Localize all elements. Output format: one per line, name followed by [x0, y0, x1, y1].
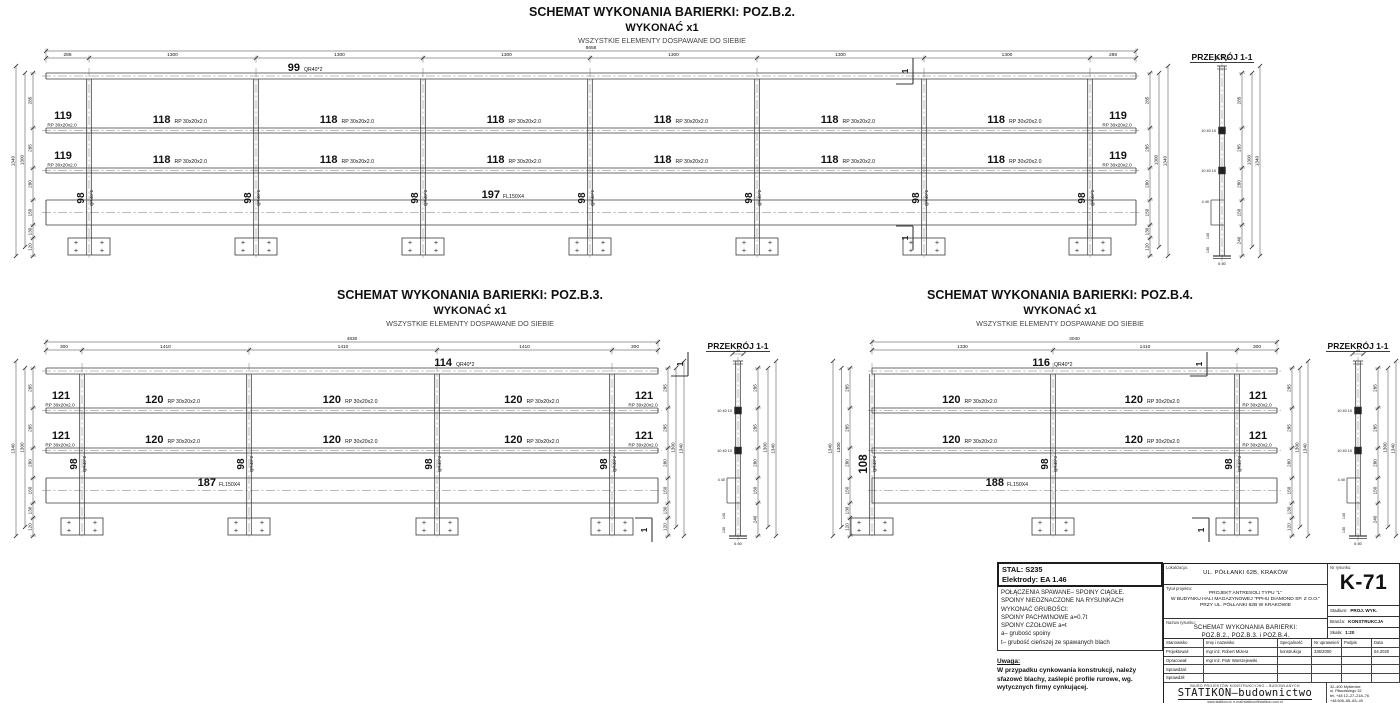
element-number: 121: [52, 390, 70, 402]
drawing-title: SCHEMAT WYKONANIA BARIERKI: POZ.B.4.: [927, 288, 1193, 302]
dim-label: 120: [1286, 523, 1291, 531]
element-number: 119: [1109, 150, 1127, 162]
post-profile: QR40*2: [757, 189, 762, 206]
cell-location: Lokalizacja: UL. PÓŁŁANKI 62B, KRAKÓW: [1164, 564, 1328, 585]
col-header: Nr uprawnień: [1312, 639, 1342, 648]
dim-label: 288: [63, 52, 71, 58]
post-number: 98: [744, 192, 755, 204]
element-profile: RP 30x20x2.0: [47, 163, 77, 168]
dim-label: 1300: [1153, 154, 1158, 165]
date-cell: [1372, 665, 1400, 674]
spec-cell: [1278, 674, 1312, 683]
element-profile: RP 30x20x2.0: [1147, 439, 1180, 445]
section-cut-mark: 1: [640, 527, 649, 532]
post-number: 98: [911, 192, 922, 204]
dim-label: 285: [1236, 96, 1241, 104]
dim-label: 8658: [586, 45, 597, 51]
dim-label: 285: [1236, 144, 1241, 152]
dim-label: 130: [1286, 506, 1291, 514]
dim-label: 120: [844, 523, 849, 531]
dim-label: 10 40 10: [1337, 449, 1352, 453]
element-profile: RP 30x20x2.0: [1242, 443, 1272, 448]
remark-line: sfazowć blachy, zaślepić profile rurowe,…: [997, 676, 1163, 684]
post-profile: QR40*2: [82, 455, 87, 472]
post-profile: QR40*2: [924, 189, 929, 206]
notes-block: STAL: S235 Elektrody: EA 1.46 POŁĄCZENIA…: [997, 562, 1163, 693]
element-number: 118: [487, 114, 505, 126]
dim-label: 140: [1342, 513, 1346, 519]
post-number: 98: [243, 192, 254, 204]
dim-label: 285: [662, 384, 667, 392]
element-number: 119: [54, 110, 72, 122]
element-profile: RP 30x20x2.0: [168, 439, 201, 445]
element-profile: RP 30x20x2.0: [509, 119, 542, 125]
element-number: 118: [153, 154, 171, 166]
elevation-poz-b3: SCHEMAT WYKONANIA BARIERKI: POZ.B.3.WYKO…: [10, 288, 688, 542]
post-profile: QR40*2: [590, 189, 595, 206]
dim-label: 150: [1286, 486, 1291, 494]
dim-label: 150: [752, 486, 757, 494]
post-profile: QR40*2: [249, 455, 254, 472]
element-number: 120: [323, 394, 341, 406]
element-number: 121: [1249, 390, 1267, 402]
dim-label: 1340: [1302, 443, 1307, 454]
element-profile: RP 30x20x2.0: [175, 119, 208, 125]
element-profile: RP 30x20x2.0: [843, 159, 876, 165]
post-profile: QR40*2: [612, 455, 617, 472]
element-number: 188: [986, 477, 1004, 489]
date-cell: [1372, 657, 1400, 666]
weld-note-line: SPOINY PACHWINOWE a=0.7t: [1001, 614, 1159, 622]
element-number: 120: [504, 394, 522, 406]
dim-label: 150: [27, 486, 32, 494]
company-address: 32–400 Myślenice ul. Piłsudskiego 32 tel…: [1327, 683, 1400, 703]
dim-label: 280: [27, 180, 32, 188]
welding-notes-box: POŁĄCZENIA SPAWANE– SPOINY CIĄGŁE. SPOIN…: [997, 587, 1163, 651]
dim-label: 120: [27, 523, 32, 531]
section-cut-mark: 1: [901, 68, 910, 73]
element-number: 118: [654, 154, 672, 166]
element-number: 118: [320, 154, 338, 166]
drawing-number: K-71: [1328, 570, 1399, 596]
dim-label: 150: [1236, 208, 1241, 216]
dim-label: 285: [27, 96, 32, 104]
dim-label: 285: [1144, 96, 1149, 104]
dim-label: 1410: [519, 344, 530, 350]
col-header: Data: [1372, 639, 1400, 648]
element-profile: RP 30x20x2.0: [676, 119, 709, 125]
section-view: PRZEKRÓJ 1-14510 40 1010 40 104 406 8014…: [1190, 51, 1262, 266]
post-profile: QR40*2: [1090, 189, 1095, 206]
branch-value: KONSTRUKCJA: [1348, 619, 1383, 628]
dim-label: 1340: [770, 443, 775, 454]
weld-note-line: a– grubość spoiny: [1001, 630, 1159, 638]
element-number: 187: [198, 477, 216, 489]
dim-label: 1300: [1294, 442, 1299, 453]
license-cell: [1312, 674, 1342, 683]
weld-note-line: SPOINY NIEOZNACZONE NA RYSUNKACH: [1001, 597, 1159, 605]
section-view: PRZEKRÓJ 1-14510 40 1010 40 104 406 8014…: [1326, 340, 1398, 546]
element-profile: RP 30x20x2.0: [965, 439, 998, 445]
dim-label: 280: [1144, 180, 1149, 188]
dim-label: 120: [662, 523, 667, 531]
element-number: 121: [1249, 430, 1267, 442]
element-number: 118: [987, 154, 1005, 166]
dim-label: 10 40 10: [1337, 409, 1352, 413]
dim-label: 285: [1372, 384, 1377, 392]
element-number: 118: [654, 114, 672, 126]
element-number: 121: [635, 390, 653, 402]
scale-label: Skala:: [1330, 630, 1342, 639]
signature-cell: [1342, 648, 1372, 657]
element-number: 121: [52, 430, 70, 442]
element-number: 118: [320, 114, 338, 126]
dim-label: 1300: [668, 52, 679, 58]
dim-label: 1300: [836, 442, 841, 453]
dim-label: 1300: [334, 52, 345, 58]
dim-label: 10 40 10: [717, 449, 732, 453]
remark-line: wytycznych firmy cynkującej.: [997, 684, 1163, 692]
element-number: 116: [1032, 357, 1050, 369]
dim-label: 280: [27, 459, 32, 467]
element-number: 120: [504, 434, 522, 446]
cell-project-title: Tytuł projektu: PROJEKT ANTRESOLI TYPU "…: [1164, 585, 1328, 619]
post-number: 98: [424, 458, 435, 470]
dim-label: 1300: [1002, 52, 1013, 58]
element-number: 118: [987, 114, 1005, 126]
element-number: 119: [1109, 110, 1127, 122]
dim-label: 1300: [501, 52, 512, 58]
remark-block: Uwaga: W przypadku cynkowania konstrukcj…: [997, 658, 1163, 693]
cell-branch: Branża: KONSTRUKCJA: [1328, 617, 1400, 628]
post-profile: QR40*2: [89, 189, 94, 206]
post-number: 98: [1224, 458, 1235, 470]
spec-cell: [1278, 657, 1312, 666]
col-header: Specjalność: [1278, 639, 1312, 648]
dim-label: 300: [631, 344, 639, 350]
element-profile: FL150X4: [503, 194, 524, 200]
dim-label: 1330: [957, 344, 968, 350]
make-count: WYKONAĆ x1: [625, 21, 698, 34]
stadium-label: Stadium:: [1330, 608, 1347, 617]
dim-label: 150: [662, 486, 667, 494]
dim-label: 6 80: [1354, 542, 1361, 546]
element-number: 197: [482, 189, 500, 201]
dim-label: 6 80: [1218, 262, 1225, 266]
element-profile: RP 30x20x2.0: [345, 399, 378, 405]
dim-label: 285: [27, 424, 32, 432]
dim-label: 285: [27, 384, 32, 392]
dim-label: 1300: [19, 154, 24, 165]
element-profile: RP 30x20x2.0: [843, 119, 876, 125]
element-profile: RP 30x20x2.0: [1009, 159, 1042, 165]
element-profile: RP 30x20x2.0: [628, 443, 658, 448]
date-cell: [1372, 674, 1400, 683]
element-number: 120: [145, 394, 163, 406]
cell-stadium: Stadium: PROJ. WYK.: [1328, 606, 1400, 617]
dim-label: 280: [662, 459, 667, 467]
element-profile: RP 30x20x2.0: [1242, 403, 1272, 408]
dim-label: 150: [27, 208, 32, 216]
cell-scale: Skala: 1:20: [1328, 628, 1400, 639]
dim-label: 1300: [762, 442, 767, 453]
element-profile: RP 30x20x2.0: [45, 443, 75, 448]
element-number: 120: [1125, 394, 1143, 406]
dim-label: 285: [752, 384, 757, 392]
dim-label: 4 40: [1338, 478, 1345, 482]
element-profile: RP 30x20x2.0: [175, 159, 208, 165]
dim-label: 285: [662, 424, 667, 432]
dim-label: 240: [1372, 515, 1377, 523]
element-profile: FL150X4: [219, 482, 240, 488]
post-number: 98: [577, 192, 588, 204]
element-number: 114: [434, 357, 453, 369]
element-number: 121: [635, 430, 653, 442]
name-cell: [1204, 665, 1278, 674]
spec-cell: [1278, 665, 1312, 674]
element-number: 118: [821, 154, 839, 166]
dim-label: 280: [1286, 459, 1291, 467]
branch-label: Branża:: [1330, 619, 1345, 628]
dim-label: 150: [1372, 486, 1377, 494]
dim-label: 1340: [10, 155, 15, 166]
element-profile: RP 30x20x2.0: [45, 403, 75, 408]
element-profile: RP 30x20x2.0: [1009, 119, 1042, 125]
dim-label: 1300: [670, 442, 675, 453]
dim-label: 45: [1356, 348, 1360, 353]
weld-note: WSZYSTKIE ELEMENTY DOSPAWANE DO SIEBIE: [386, 319, 554, 328]
post-number: 108: [858, 454, 870, 474]
element-number: 120: [1125, 434, 1143, 446]
drawing-sheet: SCHEMAT WYKONANIA BARIERKI: POZ.B.2.WYKO…: [0, 0, 1400, 703]
dim-label: 45: [736, 348, 740, 353]
dim-label: 280: [1372, 459, 1377, 467]
dim-label: 130: [27, 227, 32, 235]
weld-note-line: POŁĄCZENIA SPAWANE– SPOINY CIĄGŁE.: [1001, 589, 1159, 597]
dim-label: 10 40 10: [717, 409, 732, 413]
license-cell: [1312, 665, 1342, 674]
element-profile: QR40*2: [456, 362, 475, 368]
dim-label: 130: [722, 527, 726, 533]
make-count: WYKONAĆ x1: [1023, 304, 1096, 317]
remark-line: W przypadku cynkowania konstrukcji, nale…: [997, 667, 1163, 675]
elevation-poz-b4: SCHEMAT WYKONANIA BARIERKI: POZ.B.4.WYKO…: [827, 288, 1310, 542]
element-number: 120: [145, 434, 163, 446]
electrodes: Elektrody: EA 1.46: [1002, 575, 1158, 585]
dim-label: 240: [1236, 236, 1241, 244]
weld-note: WSZYSTKIE ELEMENTY DOSPAWANE DO SIEBIE: [976, 319, 1144, 328]
name-cell: mgr inż. Robert Mizera: [1204, 648, 1278, 657]
dim-label: 1300: [1246, 154, 1251, 165]
weld-note-line: t– grubość cieńszej ze spawanych blach: [1001, 639, 1159, 647]
remark-label: Uwaga:: [997, 658, 1163, 666]
drawing-title: SCHEMAT WYKONANIA BARIERKI: POZ.B.3.: [337, 288, 603, 302]
element-profile: QR40*2: [1054, 362, 1073, 368]
element-profile: QR40*2: [304, 67, 323, 73]
section-cut-mark: 1: [1197, 527, 1206, 532]
dim-label: 130: [662, 506, 667, 514]
dim-label: 130: [1206, 247, 1210, 253]
weld-note-line: SPOINY CZOŁOWE a=t: [1001, 622, 1159, 630]
stadium-value: PROJ. WYK.: [1350, 608, 1377, 617]
post-profile: QR40*2: [1053, 455, 1058, 472]
weld-note: WSZYSTKIE ELEMENTY DOSPAWANE DO SIEBIE: [578, 36, 746, 45]
location-value: UL. PÓŁŁANKI 62B, KRAKÓW: [1164, 570, 1327, 576]
element-number: 118: [487, 154, 505, 166]
dim-label: 130: [27, 506, 32, 514]
dim-label: 140: [722, 513, 726, 519]
dim-label: 3040: [1069, 336, 1080, 342]
element-profile: RP 30x20x2.0: [527, 439, 560, 445]
element-profile: RP 30x20x2.0: [47, 123, 77, 128]
post-number: 98: [76, 192, 87, 204]
section-cut-mark: 1: [1195, 361, 1204, 366]
element-number: 118: [821, 114, 839, 126]
role-cell: Opracował:: [1164, 657, 1204, 666]
dim-label: 1410: [1140, 344, 1151, 350]
element-profile: RP 30x20x2.0: [342, 119, 375, 125]
dim-label: 240: [752, 515, 757, 523]
company-cell: BIURO PROJEKTÓW KONSTRUKCYJNO – BUDOWLAN…: [1164, 683, 1327, 703]
post-profile: QR40*2: [872, 455, 877, 472]
elevation-poz-b2: SCHEMAT WYKONANIA BARIERKI: POZ.B.2.WYKO…: [10, 5, 1170, 258]
dim-label: 120: [27, 243, 32, 251]
dim-label: 1340: [1162, 155, 1167, 166]
role-cell: Sprawdził:: [1164, 674, 1204, 683]
dim-label: 1340: [1254, 155, 1259, 166]
element-profile: RP 30x20x2.0: [628, 403, 658, 408]
dim-label: 285: [1144, 144, 1149, 152]
dim-label: 150: [844, 486, 849, 494]
scale-value: 1:20: [1345, 630, 1354, 639]
project-title-line: PRZY UL. PÓŁŁANKI 62B W KRAKOWIE: [1164, 603, 1327, 609]
name-cell: [1204, 674, 1278, 683]
element-number: 119: [54, 150, 72, 162]
dim-label: 150: [1144, 208, 1149, 216]
dim-label: 288: [1109, 52, 1117, 58]
dim-label: 130: [1144, 227, 1149, 235]
dim-label: 1410: [338, 344, 349, 350]
element-profile: RP 30x20x2.0: [342, 159, 375, 165]
address-line: +48 606–65–83–49: [1330, 699, 1400, 703]
element-number: 118: [153, 114, 171, 126]
dim-label: 285: [844, 384, 849, 392]
dim-label: 1410: [160, 344, 171, 350]
name-cell: mgr inż. Piotr Warszejewski: [1204, 657, 1278, 666]
dim-label: 130: [844, 506, 849, 514]
post-number: 98: [1077, 192, 1088, 204]
element-profile: RP 30x20x2.0: [676, 159, 709, 165]
dim-label: 285: [1372, 424, 1377, 432]
signature-cell: [1342, 665, 1372, 674]
element-profile: RP 30x20x2.0: [345, 439, 378, 445]
dim-label: 285: [752, 424, 757, 432]
dim-label: 285: [1286, 424, 1291, 432]
post-profile: QR40*2: [1237, 455, 1242, 472]
role-cell: Projektował:: [1164, 648, 1204, 657]
post-number: 98: [1040, 458, 1051, 470]
dim-label: 1300: [835, 52, 846, 58]
dim-label: 140: [1206, 233, 1210, 239]
dim-label: 285: [1286, 384, 1291, 392]
element-number: 120: [942, 434, 960, 446]
dim-label: 285: [844, 424, 849, 432]
role-cell: Sprawdzał:: [1164, 665, 1204, 674]
spec-cell: konstrukcja: [1278, 648, 1312, 657]
signature-cell: [1342, 674, 1372, 683]
dim-label: 300: [1253, 344, 1261, 350]
dim-label: 1340: [678, 443, 683, 454]
weld-note-line: WYKONAĆ GRUBOŚCI:: [1001, 606, 1159, 614]
date-cell: 04.2020: [1372, 648, 1400, 657]
element-number: 120: [942, 394, 960, 406]
license-cell: [1312, 657, 1342, 666]
dim-label: 300: [60, 344, 68, 350]
section-view: PRZEKRÓJ 1-14510 40 1010 40 104 406 8014…: [706, 340, 778, 546]
make-count: WYKONAĆ x1: [433, 304, 506, 317]
post-number: 98: [599, 458, 610, 470]
license-cell: 336/2000: [1312, 648, 1342, 657]
post-profile: QR40*2: [256, 189, 261, 206]
element-profile: RP 30x20x2.0: [1147, 399, 1180, 405]
dim-label: 10 40 10: [1201, 169, 1216, 173]
dim-label: 285: [27, 144, 32, 152]
steel-grade: STAL: S235: [1002, 565, 1158, 575]
company-band: BIURO PROJEKTÓW KONSTRUKCYJNO – BUDOWLAN…: [1164, 683, 1400, 703]
dim-label: 120: [1144, 243, 1149, 251]
dim-label: 4 40: [1202, 200, 1209, 204]
dim-label: 4 40: [718, 478, 725, 482]
col-header: Imię i nazwisko: [1204, 639, 1278, 648]
company-name: STATIKON–budownictwo: [1178, 688, 1312, 700]
dim-label: 45: [1220, 53, 1224, 58]
section-cut-mark: 1: [901, 235, 910, 240]
post-number: 98: [69, 458, 80, 470]
element-profile: RP 30x20x2.0: [1102, 123, 1132, 128]
post-profile: QR40*2: [423, 189, 428, 206]
dim-label: 1340: [10, 443, 15, 454]
post-profile: QR40*2: [437, 455, 442, 472]
dim-label: 280: [752, 459, 757, 467]
dim-label: 280: [844, 459, 849, 467]
element-profile: RP 30x20x2.0: [509, 159, 542, 165]
title-block: Lokalizacja: UL. PÓŁŁANKI 62B, KRAKÓW Ty…: [1163, 563, 1400, 703]
dim-label: 1300: [1382, 442, 1387, 453]
post-number: 98: [410, 192, 421, 204]
element-profile: RP 30x20x2.0: [527, 399, 560, 405]
material-box: STAL: S235 Elektrody: EA 1.46: [997, 562, 1163, 587]
cell-drawing-name: Nazwa rysunku: SCHEMAT WYKONANIA BARIERK…: [1164, 619, 1328, 639]
element-profile: RP 30x20x2.0: [965, 399, 998, 405]
dim-label: 4830: [347, 336, 358, 342]
drawing-name-line: SCHEMAT WYKONANIA BARIERKI:: [1164, 625, 1327, 633]
dim-label: 130: [1342, 527, 1346, 533]
element-number: 120: [323, 434, 341, 446]
post-number: 98: [236, 458, 247, 470]
element-profile: RP 30x20x2.0: [1102, 163, 1132, 168]
dim-label: 280: [1236, 180, 1241, 188]
dim-label: 1340: [1390, 443, 1395, 454]
cell-drawing-number: Nr rysunku: K-71: [1328, 564, 1400, 606]
element-profile: RP 30x20x2.0: [168, 399, 201, 405]
dim-label: 1340: [827, 443, 832, 454]
dim-label: 6 80: [734, 542, 741, 546]
dim-label: 1300: [167, 52, 178, 58]
col-header: Stanowisko: [1164, 639, 1204, 648]
col-header: Podpis: [1342, 639, 1372, 648]
personnel-table: Stanowisko Imię i nazwisko Specjalność N…: [1164, 639, 1400, 683]
element-number: 99: [288, 62, 300, 74]
